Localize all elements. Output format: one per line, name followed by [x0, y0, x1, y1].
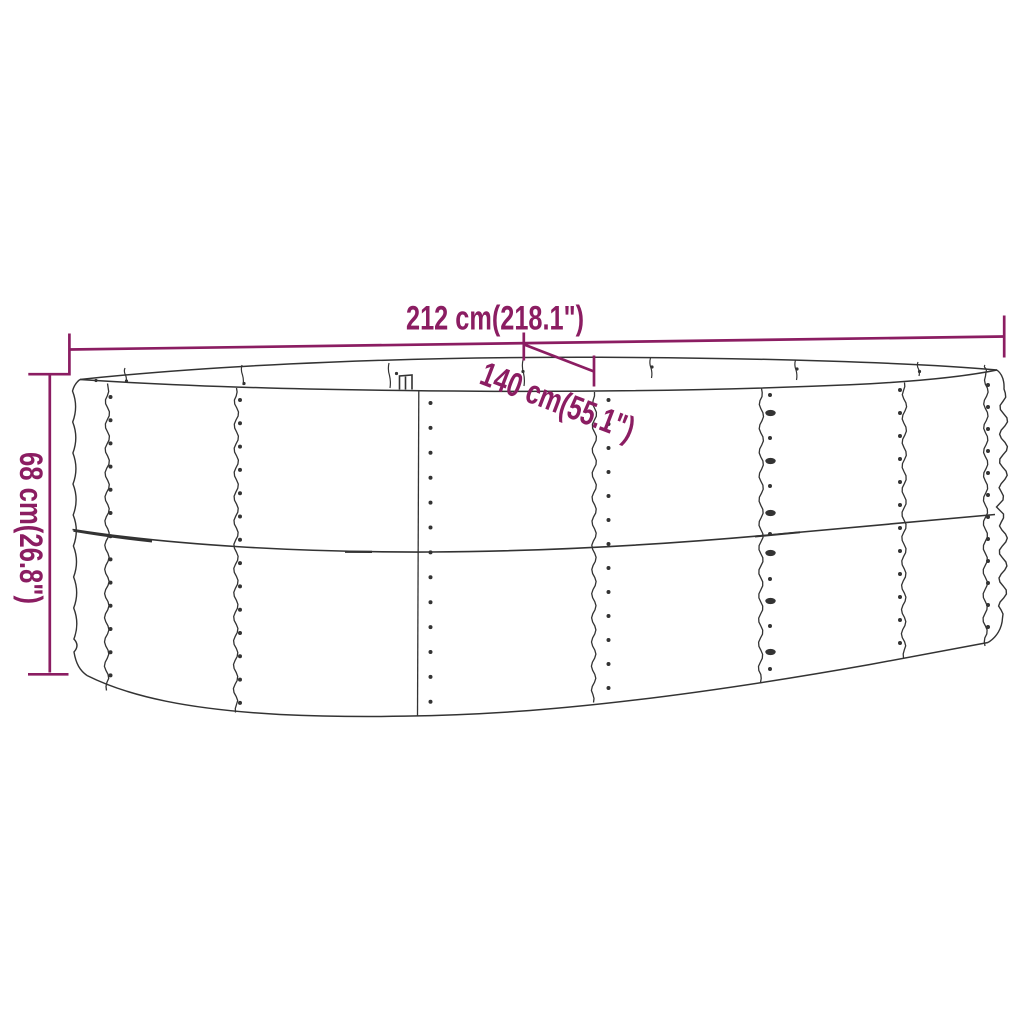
svg-text:68 cm(26.8"): 68 cm(26.8") [13, 452, 49, 604]
svg-text:212 cm(218.1"): 212 cm(218.1") [406, 300, 584, 338]
